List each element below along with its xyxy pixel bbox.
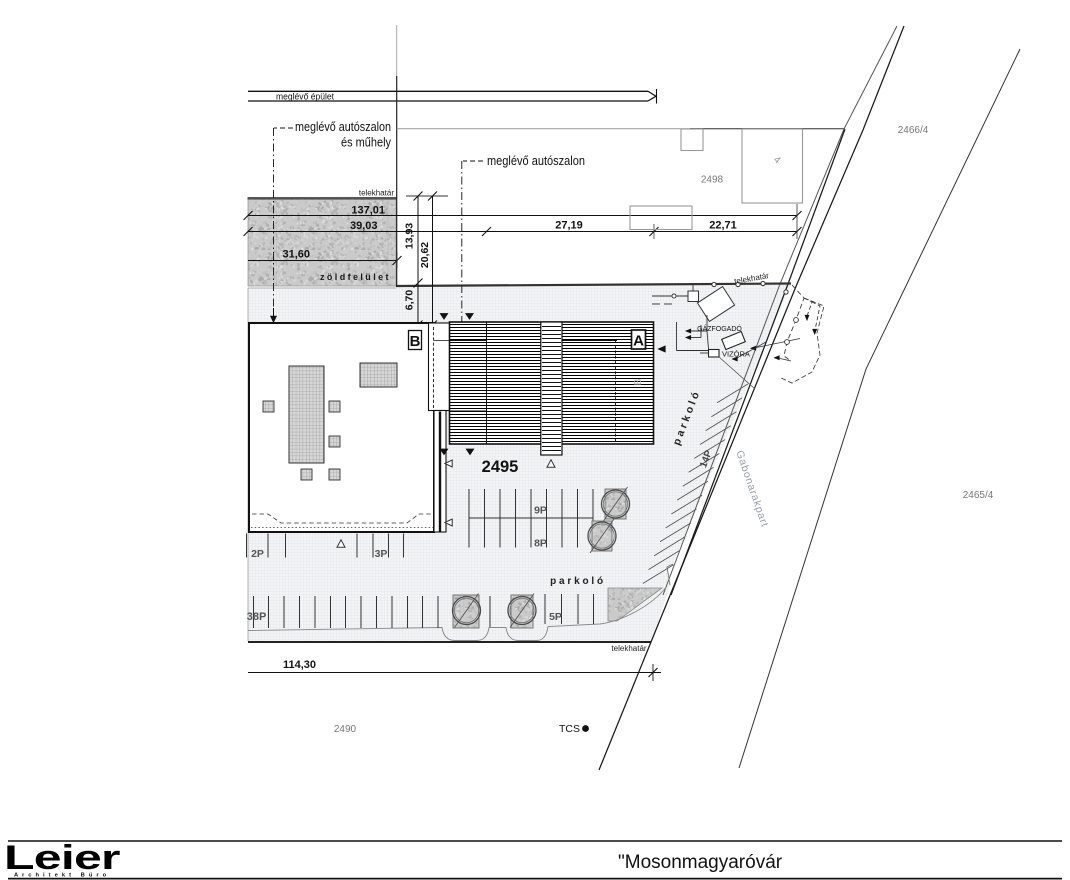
svg-text:és műhely: és műhely	[341, 136, 392, 150]
svg-text:telekhatár: telekhatár	[359, 189, 394, 198]
svg-text:VIZÓRA: VIZÓRA	[722, 350, 750, 359]
svg-text:2498: 2498	[701, 175, 724, 186]
svg-text:137,01: 137,01	[351, 205, 385, 217]
svg-text:A: A	[633, 333, 644, 350]
svg-text:Leier: Leier	[4, 839, 120, 877]
svg-text:39,03: 39,03	[350, 220, 378, 232]
svg-text:9P: 9P	[534, 505, 547, 517]
svg-text:meglévő épület: meglévő épület	[276, 92, 334, 103]
svg-text:2490: 2490	[334, 724, 357, 735]
svg-text:27,19: 27,19	[555, 220, 583, 232]
svg-text:3P: 3P	[375, 548, 388, 560]
svg-text:20,62: 20,62	[419, 242, 431, 268]
svg-text:38P: 38P	[247, 611, 267, 623]
svg-text:2P: 2P	[251, 548, 264, 560]
svg-text:"Mosonmagyaróvár: "Mosonmagyaróvár	[618, 852, 783, 873]
svg-text:B: B	[410, 333, 421, 350]
svg-text:31,60: 31,60	[282, 249, 310, 261]
svg-text:A r c h i t e k t B ü r o: A r c h i t e k t B ü r o	[14, 873, 107, 879]
svg-text:GÁZFOGADÓ: GÁZFOGADÓ	[697, 324, 742, 333]
svg-text:114,30: 114,30	[283, 659, 316, 671]
svg-text:meglévő autószalon: meglévő autószalon	[295, 120, 391, 134]
svg-text:parkoló: parkoló	[550, 576, 606, 587]
svg-text:B: B	[633, 378, 644, 385]
svg-text:6,70: 6,70	[404, 290, 416, 311]
svg-text:2465/4: 2465/4	[963, 490, 994, 501]
svg-text:telekhatár: telekhatár	[611, 644, 646, 653]
svg-text:22,71: 22,71	[709, 220, 737, 232]
svg-text:meglévő autószalon: meglévő autószalon	[487, 154, 585, 168]
svg-text:2495: 2495	[482, 458, 519, 476]
svg-text:2466/4: 2466/4	[898, 125, 929, 136]
svg-text:8P: 8P	[534, 538, 547, 550]
svg-text:13,93: 13,93	[404, 223, 416, 249]
svg-text:zöldfelület: zöldfelület	[320, 272, 391, 282]
svg-text:TCS: TCS	[559, 723, 580, 735]
svg-text:5P: 5P	[549, 611, 562, 623]
